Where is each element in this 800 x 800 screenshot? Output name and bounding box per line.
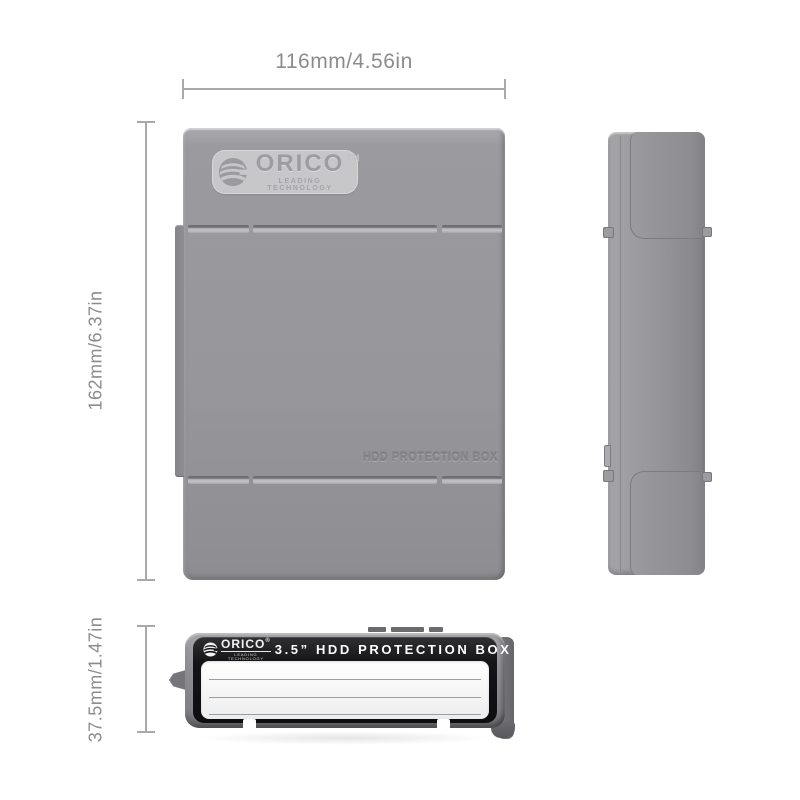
- width-dimension-line: [183, 88, 505, 90]
- label-plate: ORICO® LEADING TECHNOLOGY 3.5” HDD PROTE…: [193, 637, 497, 723]
- bottom-notch: [437, 719, 450, 729]
- label-title: 3.5” HDD PROTECTION BOX: [271, 642, 512, 657]
- trademark-symbol: TM: [346, 153, 360, 163]
- width-dimension-tick-left: [182, 79, 184, 99]
- width-dimension-tick-right: [504, 79, 506, 99]
- side-tab: [702, 472, 712, 482]
- label-header: ORICO® LEADING TECHNOLOGY 3.5” HDD PROTE…: [203, 639, 491, 659]
- side-view: [608, 132, 705, 575]
- lid-seam-bottom: [183, 476, 505, 485]
- side-tab: [603, 227, 614, 238]
- latch-slot: [188, 225, 249, 233]
- label-tagline: LEADING TECHNOLOGY: [221, 653, 271, 661]
- embossed-product-text: HDD PROTECTION BOX: [363, 450, 464, 464]
- label-brand-name: ORICO: [221, 637, 265, 651]
- drop-shadow: [195, 731, 495, 745]
- side-clip-band: [175, 225, 184, 477]
- label-logo-text: ORICO® LEADING TECHNOLOGY: [221, 638, 271, 661]
- height-dimension-tick-top: [137, 121, 155, 123]
- label-logo: ORICO® LEADING TECHNOLOGY: [203, 638, 271, 661]
- embossed-mark: [368, 627, 386, 632]
- width-dimension-label: 116mm/4.56in: [194, 50, 494, 74]
- front-view: ORICO LEADING TECHNOLOGY TM HDD PROTECTI…: [183, 128, 505, 580]
- bottom-notch: [243, 719, 256, 729]
- orico-logo-plate: ORICO LEADING TECHNOLOGY: [212, 150, 358, 194]
- side-lid-panel-bottom: [630, 471, 705, 575]
- label-line: [209, 679, 481, 680]
- writable-label-area: [201, 661, 489, 719]
- side-lid-panel-top: [630, 132, 705, 239]
- latch-slot: [253, 225, 437, 233]
- product-dimension-diagram: 116mm/4.56in 162mm/6.37in 37.5mm/1.47in …: [0, 0, 800, 800]
- orico-tagline: LEADING TECHNOLOGY: [248, 178, 352, 192]
- orico-globe-icon: [203, 642, 218, 657]
- bottom-view: ORICO® LEADING TECHNOLOGY 3.5” HDD PROTE…: [185, 633, 505, 728]
- label-line: [209, 697, 481, 698]
- height-dimension-tick-bottom: [137, 579, 155, 581]
- latch-slot: [253, 476, 437, 484]
- embossed-mark: [429, 627, 443, 632]
- latch-slot: [442, 476, 502, 484]
- embossed-mark: [391, 627, 424, 632]
- thickness-dimension-line: [145, 626, 147, 733]
- orico-wordmark: ORICO: [248, 152, 352, 176]
- orico-logo-texts: ORICO LEADING TECHNOLOGY: [248, 152, 352, 192]
- label-line: [209, 714, 481, 715]
- thickness-dimension-tick-bottom: [137, 731, 155, 733]
- latch-slot: [442, 225, 502, 233]
- side-tab: [702, 227, 712, 237]
- mounting-tab: [169, 670, 186, 690]
- thickness-dimension-label: 37.5mm/1.47in: [86, 570, 107, 790]
- side-seam-line: [620, 136, 621, 571]
- height-dimension-label: 162mm/6.37in: [86, 241, 107, 461]
- label-wordmark: ORICO®: [221, 638, 271, 652]
- thickness-dimension-tick-top: [137, 625, 155, 627]
- height-dimension-line: [145, 122, 147, 581]
- lid-seam-top: [183, 225, 505, 234]
- side-tab: [603, 470, 614, 482]
- orico-globe-icon: [218, 157, 248, 187]
- side-latch: [604, 445, 611, 467]
- latch-slot: [188, 476, 249, 484]
